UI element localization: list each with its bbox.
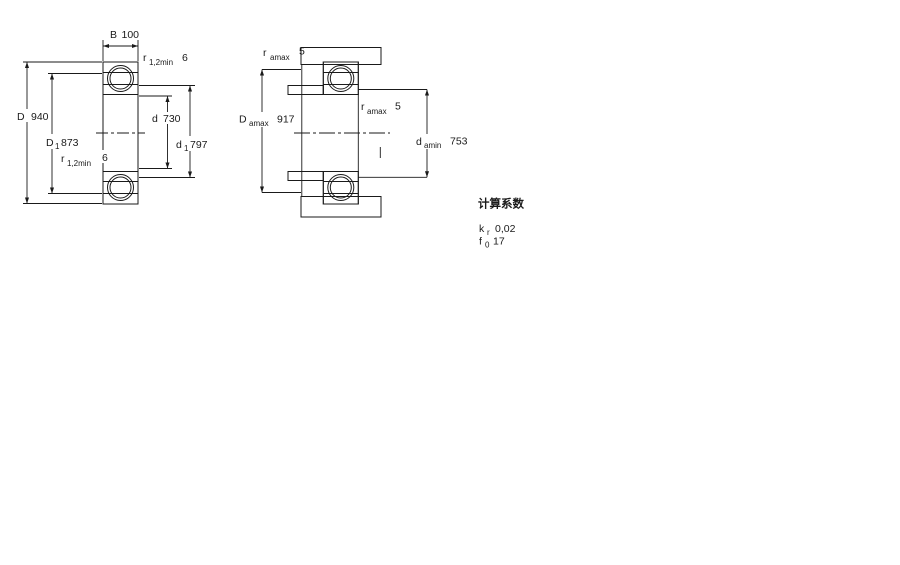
svg-text:100: 100	[122, 29, 140, 41]
calculation-factors-title: 计算系数	[478, 197, 524, 211]
mounted-bearing-top-section	[323, 62, 358, 95]
left-bearing-cross-section: B 100 D 940 D 1 873 d	[15, 29, 210, 204]
svg-text:f: f	[479, 236, 482, 248]
dim-Damax: D amax 917	[237, 70, 301, 193]
shaft-block	[301, 197, 381, 218]
svg-text:amax: amax	[367, 107, 387, 116]
dim-d: d 730	[139, 96, 181, 169]
svg-text:D: D	[46, 137, 54, 149]
calculation-factors: 计算系数 k r 0,02 f 0 17	[478, 197, 524, 250]
shoulder-strip-top	[288, 86, 323, 95]
bearing-diagrams: B 100 D 940 D 1 873 d	[0, 0, 900, 560]
outer-ring-bottom	[103, 194, 138, 205]
svg-text:r: r	[361, 101, 365, 113]
svg-text:6: 6	[102, 152, 108, 164]
svg-text:d: d	[176, 139, 182, 151]
svg-text:0: 0	[485, 241, 490, 250]
svg-text:amax: amax	[249, 119, 269, 128]
svg-text:0,02: 0,02	[495, 223, 516, 235]
svg-text:917: 917	[277, 114, 295, 126]
svg-text:6: 6	[182, 52, 188, 64]
svg-text:873: 873	[61, 137, 79, 149]
svg-text:1,2min: 1,2min	[149, 58, 173, 67]
ball-bottom	[330, 177, 351, 198]
dim-d1: d 1 797	[139, 86, 210, 178]
page: B 100 D 940 D 1 873 d	[0, 0, 900, 560]
ball-top	[330, 68, 351, 89]
dim-ra-top: r amax 5	[263, 46, 305, 63]
svg-text:k: k	[479, 223, 485, 235]
dim-B: B 100	[103, 29, 139, 61]
svg-text:753: 753	[450, 136, 468, 148]
factor-f0: f 0 17	[479, 236, 505, 250]
svg-text:D: D	[239, 114, 247, 126]
outer-ring-top	[103, 62, 138, 73]
svg-text:amin: amin	[424, 141, 441, 150]
ball-top	[110, 68, 131, 89]
dim-D: D 940	[15, 62, 102, 204]
mounted-bearing-diagram: D amax 917 d amin 753 r amax 5 r amax 5	[237, 46, 470, 218]
svg-text:797: 797	[190, 139, 208, 151]
svg-text:d: d	[416, 136, 422, 148]
svg-text:B: B	[110, 29, 117, 41]
svg-text:940: 940	[31, 111, 49, 123]
raceway-pocket-top	[328, 66, 354, 92]
dim-D1: D 1 873	[44, 74, 102, 194]
svg-text:17: 17	[493, 236, 505, 248]
svg-text:r: r	[487, 228, 490, 237]
svg-text:amax: amax	[270, 53, 290, 62]
shoulder-strip-bottom	[288, 172, 323, 181]
dim-ra-mid: r amax 5	[361, 101, 401, 117]
ball-bottom	[110, 177, 131, 198]
svg-text:1: 1	[55, 142, 60, 151]
svg-text:1: 1	[184, 144, 189, 153]
svg-text:5: 5	[395, 101, 401, 113]
svg-text:730: 730	[163, 113, 181, 125]
dim-r12-top: r 1,2min 6	[143, 52, 188, 67]
svg-text:D: D	[17, 111, 25, 123]
raceway-pocket-bottom	[108, 175, 134, 201]
svg-text:1,2min: 1,2min	[67, 159, 91, 168]
mounted-bearing-bottom-section	[323, 172, 358, 205]
svg-text:r: r	[143, 52, 147, 64]
svg-text:d: d	[152, 113, 158, 125]
svg-text:r: r	[263, 47, 267, 59]
svg-text:5: 5	[299, 46, 305, 58]
svg-text:r: r	[61, 153, 65, 165]
raceway-pocket-top	[108, 66, 134, 92]
